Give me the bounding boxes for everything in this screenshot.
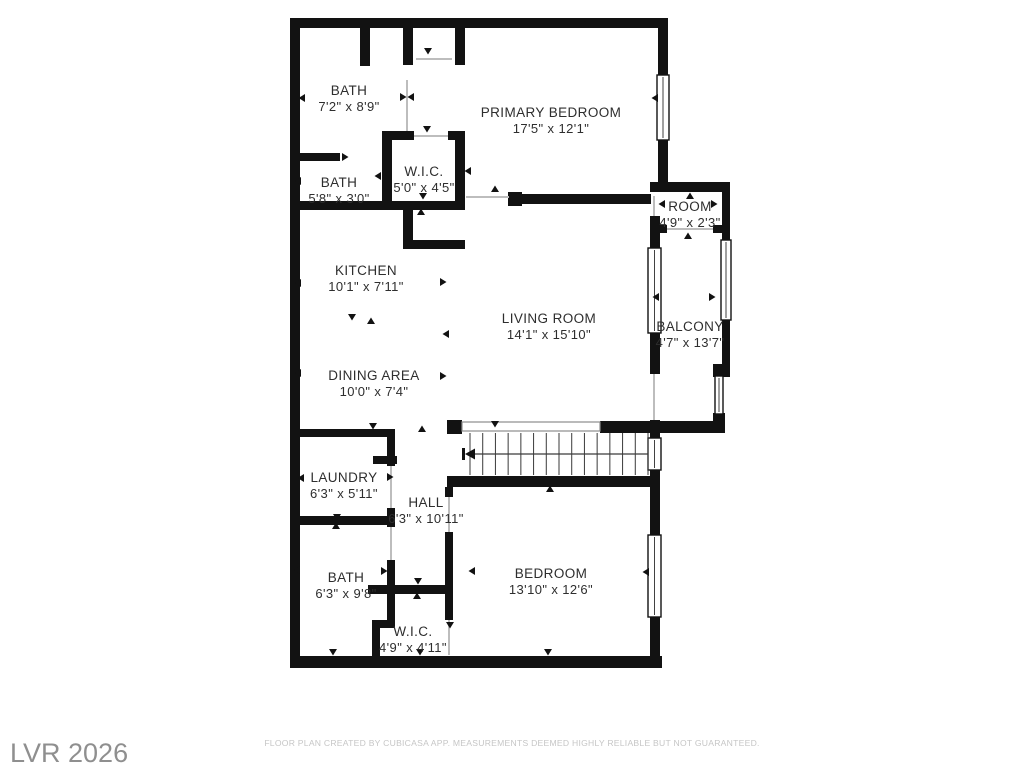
wall (300, 429, 395, 437)
wall (447, 420, 462, 434)
wall (658, 140, 668, 184)
room-name-label: BATH (321, 175, 358, 190)
room-dimensions-label: 5'8" x 3'0" (308, 191, 369, 206)
door-marker-icon (469, 567, 476, 575)
room-name-label: HALL (408, 495, 443, 510)
room-dimensions-label: 14'1" x 15'10" (507, 327, 591, 342)
door-marker-icon (381, 567, 388, 575)
room-dimensions-label: 6'3" x 9'8" (315, 586, 376, 601)
wall (387, 594, 395, 622)
room-name-label: BALCONY (656, 319, 723, 334)
door-marker-icon (342, 153, 349, 161)
room-dimensions-label: 5'0" x 4'5" (393, 180, 454, 195)
room-name-label: PRIMARY BEDROOM (481, 105, 622, 120)
wall (650, 182, 730, 192)
room-dimensions-label: 4'9" x 4'11" (379, 640, 447, 655)
wall (360, 28, 370, 66)
wall (445, 532, 453, 620)
watermark-text: LVR 2026 (10, 738, 128, 768)
door-marker-icon (423, 126, 431, 133)
room-dimensions-label: 6'3" x 5'11" (310, 486, 378, 501)
room-dimensions-label: 4'9" x 2'3" (659, 215, 720, 230)
stair-handrail (462, 422, 600, 431)
wall (382, 131, 392, 210)
wall (447, 476, 660, 487)
door-marker-icon (424, 48, 432, 55)
room-dimensions-label: 4'7" x 13'7" (656, 335, 725, 350)
room-dimensions-label: 6'3" x 10'11" (388, 511, 464, 526)
room-dimensions-label: 10'0" x 7'4" (340, 384, 409, 399)
door-marker-icon (684, 233, 692, 240)
room-name-label: W.I.C. (393, 624, 432, 639)
door-marker-icon (652, 94, 659, 102)
door-marker-icon (491, 186, 499, 193)
wall (290, 656, 662, 668)
wall (403, 28, 413, 65)
door-marker-icon (348, 314, 356, 321)
floor-plan-drawing: BATH7'2" x 8'9"PRIMARY BEDROOM17'5" x 12… (0, 0, 1024, 768)
room-name-label: BEDROOM (515, 566, 588, 581)
door-marker-icon (418, 426, 426, 433)
door-marker-icon (711, 200, 718, 208)
wall (290, 153, 340, 161)
room-dimensions-label: 13'10" x 12'6" (509, 582, 593, 597)
disclaimer-text: FLOOR PLAN CREATED BY CUBICASA APP. MEAS… (264, 738, 759, 748)
door-marker-icon (465, 167, 472, 175)
wall (658, 18, 668, 75)
room-dimensions-label: 10'1" x 7'11" (328, 279, 404, 294)
wall (368, 585, 447, 594)
wall (403, 240, 465, 249)
stair-direction-bar (462, 448, 465, 460)
wall (455, 28, 465, 65)
door-marker-icon (414, 578, 422, 585)
floor-plan-page: BATH7'2" x 8'9"PRIMARY BEDROOM17'5" x 12… (0, 0, 1024, 768)
wall (713, 364, 730, 377)
room-name-label: BATH (331, 83, 368, 98)
door-marker-icon (367, 318, 375, 325)
wall (508, 192, 522, 206)
door-marker-icon (329, 649, 337, 656)
room-dimensions-label: 7'2" x 8'9" (318, 99, 379, 114)
door-marker-icon (446, 622, 454, 629)
room-name-label: BATH (328, 570, 365, 585)
door-marker-icon (375, 172, 382, 180)
door-marker-icon (440, 278, 447, 286)
room-name-label: LIVING ROOM (502, 311, 596, 326)
door-marker-icon (709, 293, 716, 301)
door-marker-icon (643, 568, 650, 576)
room-name-label: LAUNDRY (310, 470, 377, 485)
wall (650, 617, 660, 668)
room-name-label: KITCHEN (335, 263, 397, 278)
room-dimensions-label: 17'5" x 12'1" (513, 121, 590, 136)
wall (373, 456, 397, 464)
door-marker-icon (400, 93, 407, 101)
door-marker-icon (369, 423, 377, 430)
room-name-label: ROOM (668, 199, 712, 214)
wall (382, 201, 465, 210)
room-name-label: DINING AREA (328, 368, 419, 383)
wall (600, 421, 724, 433)
wall (290, 18, 668, 28)
door-marker-icon (544, 649, 552, 656)
room-name-label: W.I.C. (404, 164, 443, 179)
wall (372, 620, 395, 628)
wall (300, 516, 395, 525)
door-marker-icon (659, 200, 666, 208)
door-marker-icon (440, 372, 447, 380)
door-marker-icon (408, 93, 415, 101)
door-marker-icon (443, 330, 450, 338)
wall (445, 487, 453, 497)
wall (455, 131, 465, 210)
